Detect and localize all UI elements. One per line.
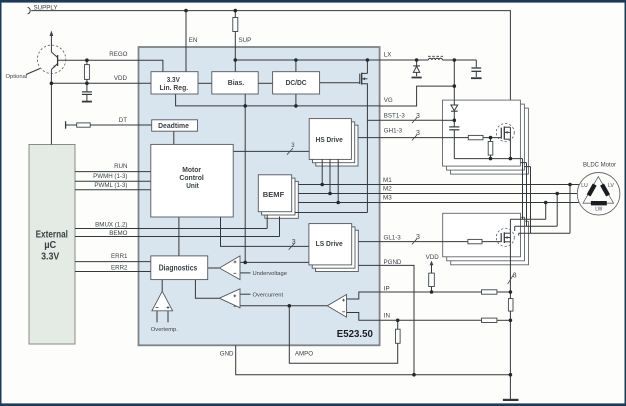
svg-text:IN: IN: [384, 312, 390, 319]
svg-text:3: 3: [416, 234, 420, 241]
svg-text:M2: M2: [383, 186, 392, 193]
svg-text:BMUX (1,2): BMUX (1,2): [95, 221, 127, 228]
svg-text:Undervoltage: Undervoltage: [253, 271, 287, 277]
svg-text:ERR1: ERR1: [111, 253, 128, 260]
svg-text:VDD: VDD: [114, 75, 128, 82]
svg-text:ERR2: ERR2: [111, 264, 128, 271]
svg-text:3.3V: 3.3V: [41, 251, 60, 262]
svg-text:M1: M1: [383, 177, 392, 184]
svg-text:Diagnostics: Diagnostics: [159, 263, 198, 272]
svg-text:HS Drive: HS Drive: [316, 135, 343, 144]
svg-text:3: 3: [416, 130, 420, 137]
svg-text:DT: DT: [119, 117, 127, 124]
svg-text:GL1-3: GL1-3: [384, 235, 402, 242]
svg-text:VDD: VDD: [426, 254, 440, 261]
svg-text:LS Drive: LS Drive: [316, 239, 343, 248]
svg-text:BEMF: BEMF: [263, 190, 285, 199]
svg-text:3: 3: [513, 273, 517, 280]
svg-text:BST1-3: BST1-3: [384, 113, 406, 120]
svg-text:DC/DC: DC/DC: [286, 78, 308, 87]
svg-text:µC: µC: [44, 240, 56, 251]
svg-text:Bias.: Bias.: [228, 78, 244, 87]
svg-text:Lin. Reg.: Lin. Reg.: [160, 83, 189, 92]
svg-text:SUP: SUP: [239, 37, 252, 44]
svg-text:IP: IP: [384, 286, 390, 293]
svg-text:RUN: RUN: [114, 163, 127, 170]
svg-text:VG: VG: [384, 97, 393, 104]
svg-text:Overtemp.: Overtemp.: [151, 327, 178, 333]
svg-text:BLDC Motor: BLDC Motor: [583, 163, 616, 169]
svg-text:PWML (1-3): PWML (1-3): [94, 182, 127, 189]
svg-text:BEMO: BEMO: [109, 230, 127, 237]
svg-text:3: 3: [416, 113, 420, 120]
svg-text:3: 3: [292, 239, 296, 246]
svg-text:Deadtime: Deadtime: [158, 121, 189, 130]
svg-text:GH1-3: GH1-3: [384, 128, 403, 135]
svg-text:Overcurrent: Overcurrent: [253, 293, 284, 299]
svg-text:PWMH (1-3): PWMH (1-3): [93, 173, 127, 180]
svg-text:AMPO: AMPO: [295, 350, 313, 357]
svg-text:SUPPLY: SUPPLY: [34, 4, 58, 11]
svg-text:LV: LV: [608, 183, 614, 189]
svg-text:M3: M3: [383, 195, 392, 202]
svg-text:Unit: Unit: [186, 181, 199, 190]
svg-text:EN: EN: [189, 37, 198, 44]
svg-text:LW: LW: [595, 207, 602, 213]
svg-text:GND: GND: [220, 350, 234, 357]
svg-text:E523.50: E523.50: [337, 328, 373, 340]
svg-text:Optional: Optional: [6, 74, 28, 80]
svg-text:PGND: PGND: [384, 259, 402, 266]
svg-text:External: External: [36, 230, 68, 241]
svg-text:LU: LU: [581, 183, 588, 189]
svg-text:REGO: REGO: [109, 51, 127, 58]
svg-text:LX: LX: [384, 52, 392, 59]
